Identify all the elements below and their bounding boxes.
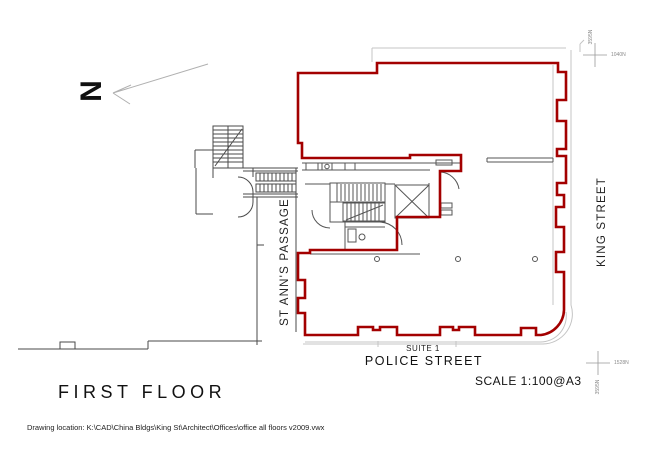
floor-title: FIRST FLOOR [58,382,226,403]
partition-wall [487,158,553,162]
survey-label-top-vertical: 3595N [588,26,594,48]
scale-label: SCALE 1:100@A3 [475,374,582,388]
survey-cross-top [583,43,607,67]
lift-shaft [395,183,429,218]
survey-label-bottom: 1528N [614,360,629,366]
survey-cross-bottom [586,351,610,375]
door-arc [312,210,330,228]
street-edge [18,341,262,349]
suite-label: SUITE 1 [393,344,453,353]
street-label-police-street: POLICE STREET [344,354,504,368]
core-details [302,158,553,262]
street-label-king-street: KING STREET [596,162,608,282]
door-leaf [441,203,452,208]
door-arc [380,222,402,245]
survey-label-top: 1040N [611,52,626,58]
column [533,257,538,262]
floor-plan-canvas: N ST ANN'S PASSAGE KING STREET SUITE 1 P… [0,0,650,460]
column [375,257,380,262]
suite-boundary-outline [298,63,566,335]
adjacent-building-lines [18,126,298,349]
door-leaf [441,210,452,215]
main-staircase [330,183,385,222]
column [456,257,461,262]
drawing-location-footer: Drawing location: K:\CAD\China Bldgs\Kin… [27,423,324,432]
north-letter: N [75,73,109,109]
street-label-st-anns-passage: ST ANN'S PASSAGE [279,192,291,332]
door-arc [440,172,459,189]
survey-label-bottom-vertical: 3595N [595,376,601,398]
north-arrow [113,64,208,104]
